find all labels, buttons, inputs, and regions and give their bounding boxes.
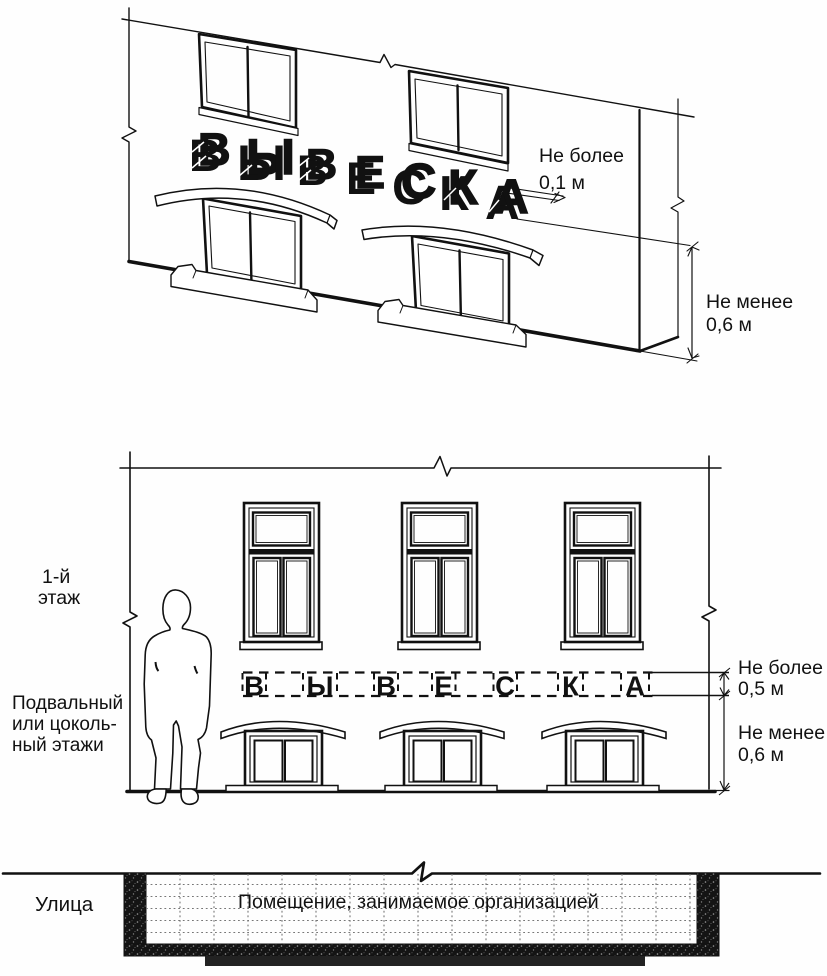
svg-text:В: В (376, 671, 396, 702)
svg-text:В: В (244, 671, 264, 702)
svg-text:С: С (495, 671, 515, 702)
svg-text:Е: Е (434, 671, 452, 702)
svg-text:Не менее: Не менее (706, 291, 793, 313)
svg-text:0,6 м: 0,6 м (738, 744, 784, 766)
svg-text:В: В (297, 147, 328, 195)
svg-text:В: В (189, 130, 222, 181)
svg-text:Ы: Ы (237, 135, 286, 191)
svg-text:К: К (562, 671, 579, 702)
svg-text:К: К (439, 167, 469, 221)
svg-text:0,1 м: 0,1 м (539, 172, 585, 194)
svg-text:Не более: Не более (738, 657, 823, 679)
svg-text:С: С (392, 161, 427, 215)
svg-text:0,6 м: 0,6 м (706, 314, 752, 336)
svg-text:0,5 м: 0,5 м (738, 678, 784, 700)
svg-text:Ы: Ы (307, 671, 334, 702)
svg-text:ный этажи: ный этажи (12, 735, 104, 756)
svg-text:или цоколь-: или цоколь- (12, 714, 117, 735)
svg-text:А: А (485, 177, 520, 230)
svg-text:Не менее: Не менее (738, 722, 825, 744)
svg-text:этаж: этаж (38, 587, 80, 609)
svg-text:Е: Е (346, 153, 376, 204)
svg-text:А: А (625, 671, 645, 702)
svg-text:Не более: Не более (539, 145, 624, 167)
svg-text:Помещение, занимаемое организа: Помещение, занимаемое организацией (238, 891, 599, 913)
svg-text:Подвальный: Подвальный (12, 693, 123, 714)
svg-text:Улица: Улица (35, 893, 94, 916)
svg-text:1-й: 1-й (42, 566, 70, 588)
